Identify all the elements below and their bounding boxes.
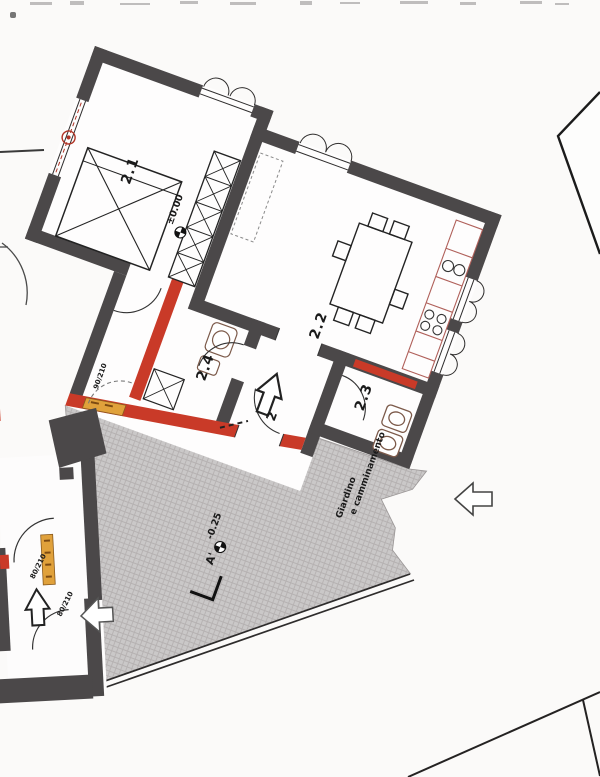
scan-speck	[10, 12, 16, 18]
scanned-floor-plan-page: 2 2.1 ±0.00 2.2 2.3 2.4 90/210 -0	[0, 0, 600, 777]
floor-plan-svg: 2 2.1 ±0.00 2.2 2.3 2.4 90/210 -0	[0, 0, 600, 777]
